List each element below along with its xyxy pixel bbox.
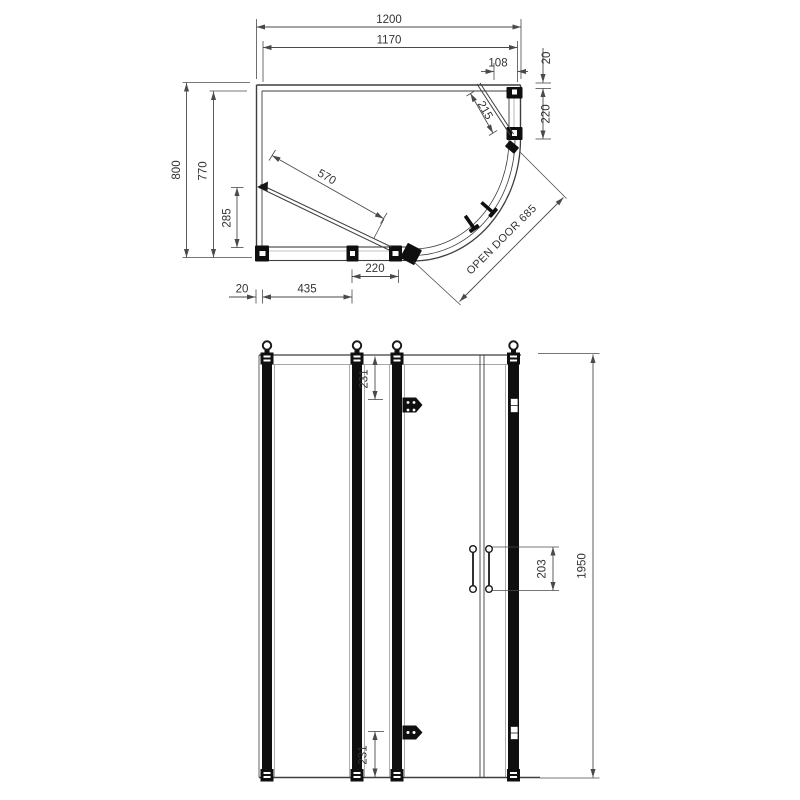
plan-door-hinge-2 [478, 198, 498, 218]
finial-3 [391, 341, 404, 364]
finial-2 [351, 341, 364, 364]
dim-label-right-panel-depth: 220 [541, 104, 553, 123]
finial-4 [507, 341, 520, 364]
dim-label-door-inswing: 285 [222, 208, 234, 227]
open-door-label: OPEN DOOR 685 [464, 202, 539, 277]
dim-label-handle-length: 203 [537, 559, 549, 578]
elevation-handle [470, 546, 493, 593]
elevation-post-1 [262, 354, 272, 778]
base-collar-1 [261, 769, 274, 782]
plan-bracket-curve-end [400, 243, 422, 266]
plan-view: 1200 1170 108 20 220 215 [171, 14, 567, 305]
dim-label-width-overall: 1200 [376, 14, 402, 26]
elevation-posts [261, 341, 521, 781]
elevation-view: 231 231 203 1950 [259, 341, 600, 781]
base-collar-2 [351, 769, 364, 782]
elevation-post-4 [508, 354, 519, 778]
elevation-post-3 [392, 354, 402, 778]
dim-label-width-glass: 1170 [377, 35, 402, 47]
base-collar-3 [391, 769, 404, 782]
elevation-post-2 [352, 354, 362, 778]
drawing-svg: 1200 1170 108 20 220 215 [0, 0, 800, 800]
dim-label-height-overall: 1950 [577, 553, 589, 579]
base-collar-4 [507, 769, 520, 782]
dim-label-door-width: 570 [315, 167, 338, 187]
finial-1 [261, 341, 274, 364]
dim-label-hinge-from-top: 231 [359, 369, 371, 388]
plan-bottom-panel [255, 243, 422, 266]
dim-label-depth-glass: 770 [198, 161, 210, 180]
door-hinge-top [403, 398, 423, 413]
elevation-hinges [403, 398, 519, 740]
shower-enclosure-technical-drawing: 1200 1170 108 20 220 215 [0, 0, 800, 800]
dim-label-front-door-gap: 220 [365, 263, 384, 275]
dim-label-hinge-from-bottom: 231 [358, 745, 370, 764]
dim-label-wall-profile-top: 20 [541, 52, 553, 65]
dim-label-door-edge-gap: 108 [488, 58, 507, 70]
dim-label-depth-overall: 800 [171, 160, 183, 179]
dim-label-wall-profile-bottom: 20 [236, 284, 249, 296]
dim-label-door-clearance: 215 [475, 99, 495, 122]
dim-label-front-panel: 435 [297, 284, 316, 296]
plan-open-door-leaf [257, 83, 514, 250]
plan-pivot-hardware [505, 140, 519, 154]
